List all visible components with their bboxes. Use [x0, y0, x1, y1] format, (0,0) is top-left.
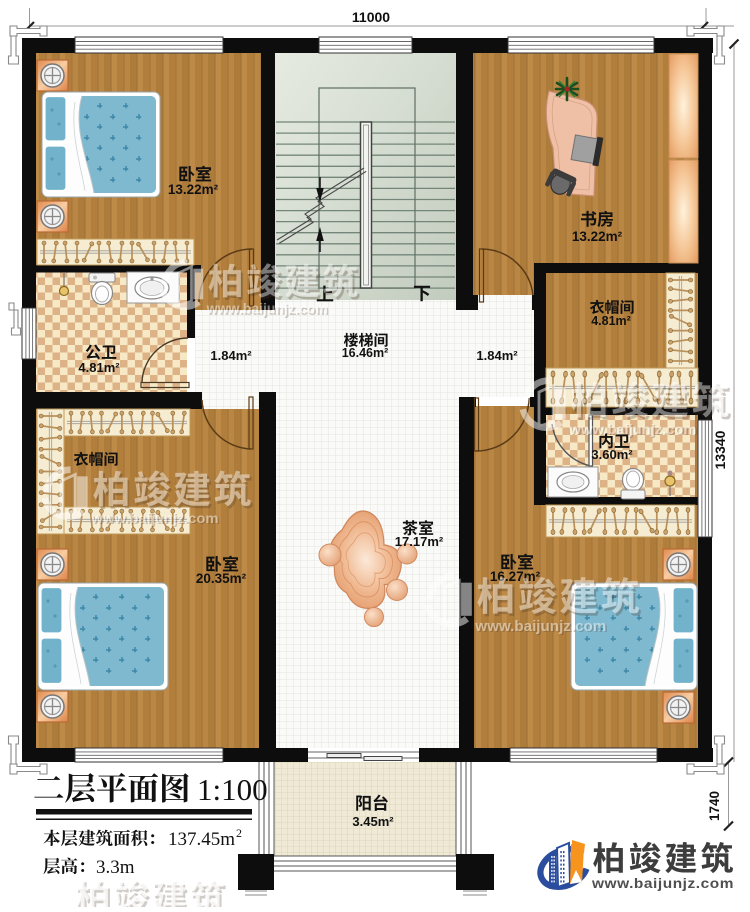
svg-text:11000: 11000	[352, 9, 390, 25]
svg-text:4.81m²: 4.81m²	[591, 314, 631, 328]
svg-text:www.baijunjz.com: www.baijunjz.com	[591, 875, 734, 891]
svg-text:3.3m: 3.3m	[96, 857, 135, 878]
svg-text:2: 2	[236, 826, 242, 840]
svg-text:3.60m²: 3.60m²	[591, 447, 633, 462]
svg-text:1:100: 1:100	[197, 772, 268, 807]
svg-text:137.45m: 137.45m	[168, 829, 235, 850]
svg-text:17.17m²: 17.17m²	[395, 534, 444, 549]
svg-text:4.81m²: 4.81m²	[78, 360, 120, 375]
svg-text:16.27m²: 16.27m²	[490, 569, 541, 584]
svg-text:www.baijunjz.com: www.baijunjz.com	[206, 300, 328, 316]
svg-text:20.35m²: 20.35m²	[196, 571, 247, 586]
svg-text:1740: 1740	[707, 791, 722, 821]
svg-text:13.22m²: 13.22m²	[168, 182, 219, 197]
svg-text:3.45m²: 3.45m²	[352, 814, 394, 829]
svg-text:1.84m²: 1.84m²	[210, 348, 252, 363]
svg-text:13340: 13340	[712, 430, 728, 469]
svg-text:www.baijunjz.com: www.baijunjz.com	[474, 618, 606, 635]
svg-text:www.baijunjz.com: www.baijunjz.com	[90, 510, 218, 526]
svg-text:www.baijunjz.com: www.baijunjz.com	[568, 421, 696, 437]
svg-text:1.84m²: 1.84m²	[476, 348, 518, 363]
svg-text:16.46m²: 16.46m²	[342, 346, 389, 360]
svg-text:13.22m²: 13.22m²	[572, 229, 623, 244]
